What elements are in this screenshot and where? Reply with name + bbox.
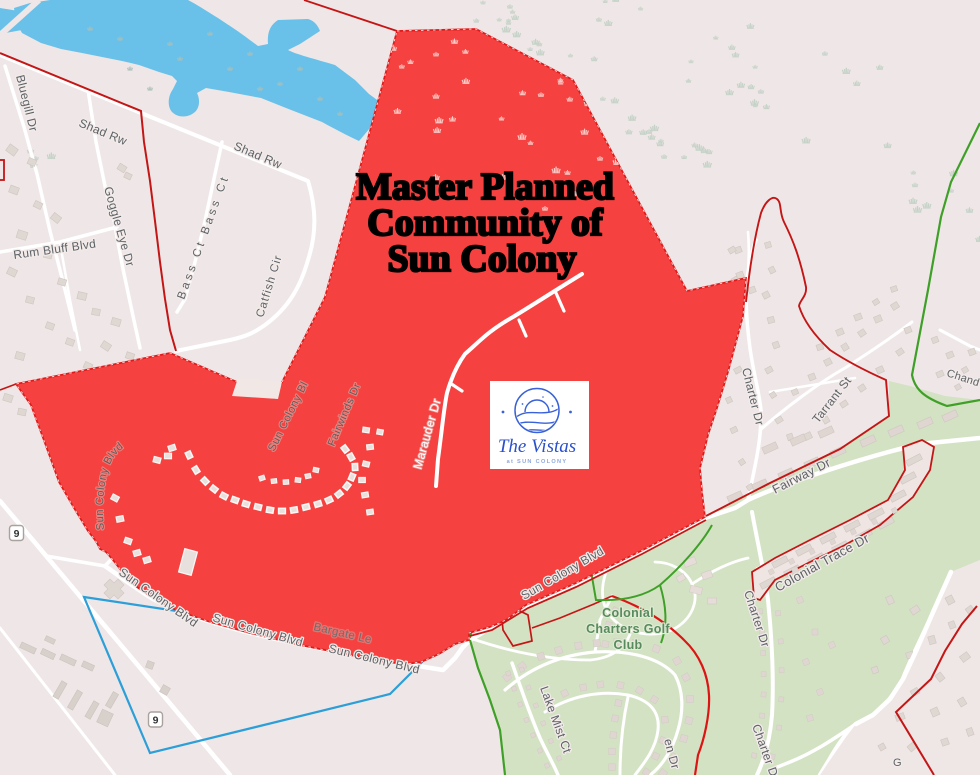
svg-text:The Vistas: The Vistas xyxy=(498,436,576,457)
svg-text:Charters Golf: Charters Golf xyxy=(586,622,670,636)
svg-text:Sun Colony: Sun Colony xyxy=(387,238,576,280)
svg-text:Club: Club xyxy=(614,638,643,652)
svg-text:at SUN COLONY: at SUN COLONY xyxy=(507,459,568,465)
svg-text:G: G xyxy=(893,757,902,769)
svg-text:Colonial: Colonial xyxy=(602,606,654,620)
svg-text:9: 9 xyxy=(153,715,159,727)
svg-text:9: 9 xyxy=(14,528,20,540)
